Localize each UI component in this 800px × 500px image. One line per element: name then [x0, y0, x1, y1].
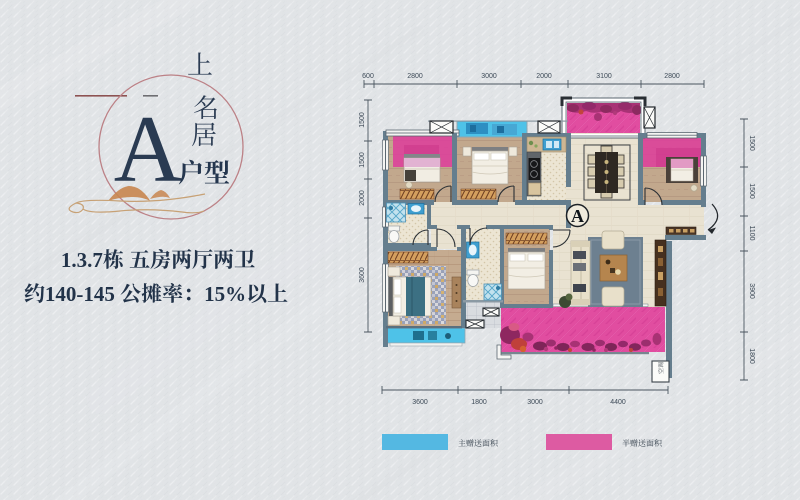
- svg-text:3000: 3000: [527, 399, 543, 406]
- svg-text:1500: 1500: [359, 152, 366, 168]
- svg-text:3100: 3100: [596, 73, 612, 80]
- svg-text:2800: 2800: [407, 73, 423, 80]
- svg-text:2000: 2000: [536, 73, 552, 80]
- svg-text:A: A: [571, 206, 584, 226]
- svg-text:空调: 空调: [657, 362, 665, 374]
- svg-text:名: 名: [193, 94, 219, 123]
- svg-text:户型: 户型: [178, 159, 230, 188]
- svg-text:约140-145 公摊率：15%以上: 约140-145 公摊率：15%以上: [24, 282, 288, 306]
- svg-text:1500: 1500: [748, 135, 755, 151]
- svg-text:600: 600: [362, 73, 374, 80]
- svg-text:1.3.7栋 五房两厅两卫: 1.3.7栋 五房两厅两卫: [61, 248, 255, 272]
- svg-text:3900: 3900: [748, 283, 755, 299]
- svg-text:上: 上: [187, 51, 213, 80]
- svg-text:1800: 1800: [748, 348, 755, 364]
- svg-text:4400: 4400: [610, 399, 626, 406]
- svg-text:3000: 3000: [481, 73, 497, 80]
- svg-text:2000: 2000: [359, 190, 366, 206]
- svg-text:1500: 1500: [359, 112, 366, 128]
- svg-text:半赠送面积: 半赠送面积: [622, 439, 662, 448]
- svg-text:1100: 1100: [748, 225, 755, 240]
- svg-text:居: 居: [191, 121, 217, 150]
- svg-text:A: A: [114, 96, 183, 202]
- svg-text:主赠送面积: 主赠送面积: [458, 439, 498, 448]
- svg-text:1500: 1500: [748, 183, 755, 199]
- svg-text:3600: 3600: [359, 267, 366, 283]
- svg-text:3600: 3600: [412, 399, 428, 406]
- svg-text:2800: 2800: [664, 73, 680, 80]
- svg-text:1800: 1800: [471, 399, 487, 406]
